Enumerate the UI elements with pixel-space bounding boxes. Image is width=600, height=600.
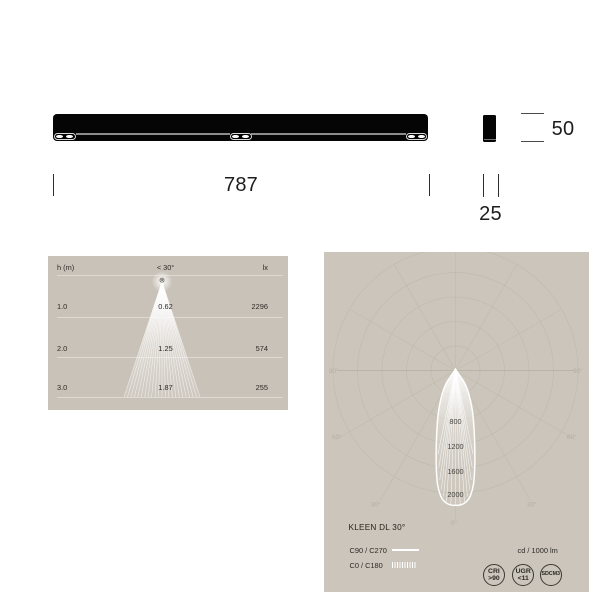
- svg-text:60°: 60°: [332, 433, 342, 441]
- svg-text:30°: 30°: [371, 501, 381, 509]
- svg-text:60°: 60°: [567, 433, 577, 441]
- svg-text:0°: 0°: [451, 519, 458, 527]
- svg-text:90°: 90°: [329, 367, 339, 375]
- svg-text:30°: 30°: [527, 501, 537, 509]
- svg-text:90°: 90°: [573, 367, 583, 375]
